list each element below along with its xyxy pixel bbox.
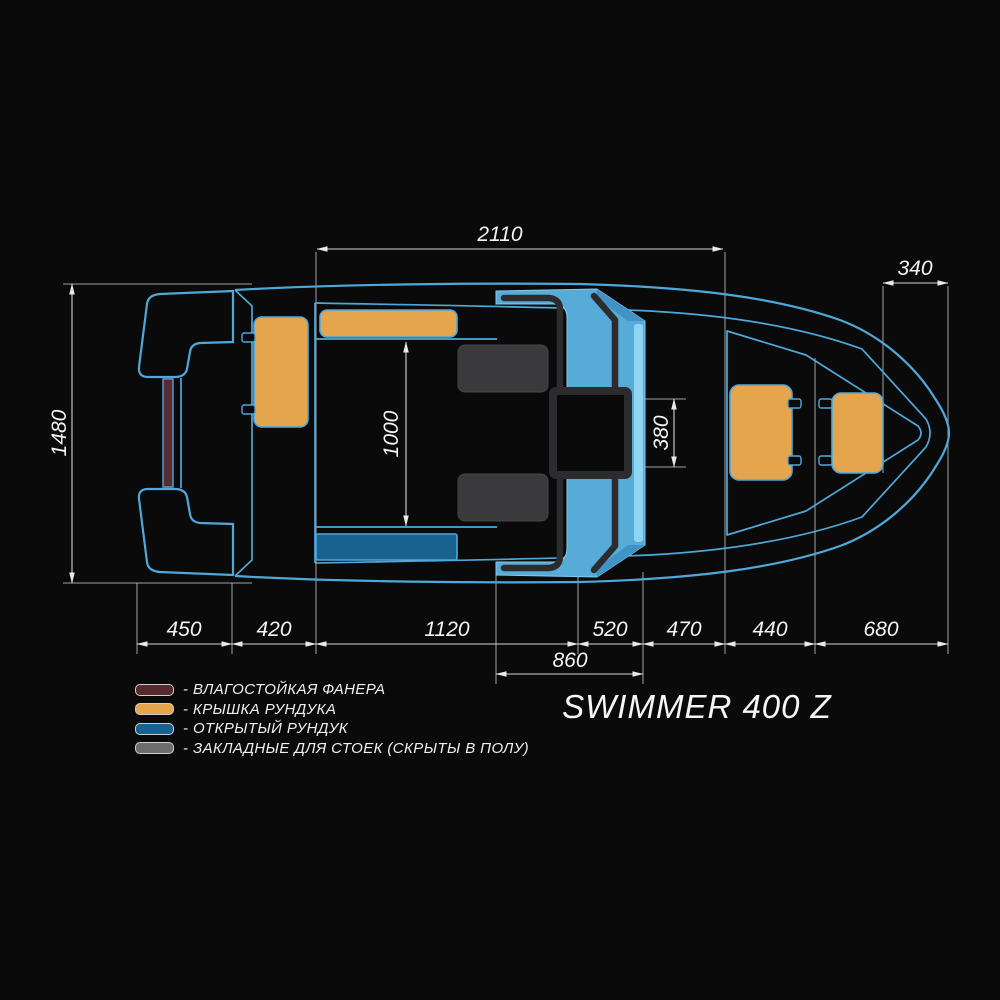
seat-plate-top (458, 345, 548, 392)
legend-item-plywood: - ВЛАГОСТОЙКАЯ ФАНЕРА (135, 680, 529, 700)
bow-hatch-large-hinge-top (788, 399, 801, 408)
legend-swatch-plywood (135, 684, 174, 696)
legend-label-plywood: - ВЛАГОСТОЙКАЯ ФАНЕРА (183, 681, 385, 698)
bow-hatch-large-hinge-bottom (788, 456, 801, 465)
legend-swatch-locker-lid (135, 703, 174, 715)
dim-520: 520 (592, 618, 627, 641)
dim-420: 420 (256, 618, 291, 641)
dim-1000: 1000 (380, 410, 403, 457)
dim-860: 860 (552, 649, 587, 672)
walkthrough-opening (553, 391, 628, 475)
bow-hatch-small-hinge-bottom (819, 456, 832, 465)
aft-bench-locker-lid (254, 317, 308, 427)
dim-680: 680 (863, 618, 898, 641)
swim-platform-top (139, 291, 233, 377)
dim-450: 450 (166, 618, 201, 641)
bow-hatch-small (832, 393, 883, 473)
legend: - ВЛАГОСТОЙКАЯ ФАНЕРА - КРЫШКА РУНДУКА -… (135, 680, 529, 758)
open-locker (316, 534, 457, 560)
windshield-highlight (634, 324, 643, 542)
legend-label-open-locker: - ОТКРЫТЫЙ РУНДУК (183, 720, 348, 737)
side-locker-lid (320, 310, 457, 337)
drawing-title: SWIMMER 400 Z (527, 688, 867, 726)
windshield (496, 289, 645, 577)
boat-technical-drawing: 2110 340 1480 1000 380 450 420 1120 520 … (0, 0, 1000, 1000)
dim-470: 470 (666, 618, 701, 641)
legend-item-seat-plates: - ЗАКЛАДНЫЕ ДЛЯ СТОЕК (СКРЫТЫ В ПОЛУ) (135, 739, 529, 759)
seat-plate-bottom (458, 474, 548, 521)
legend-swatch-open-locker (135, 723, 174, 735)
legend-label-locker-lid: - КРЫШКА РУНДУКА (183, 701, 336, 718)
dim-380: 380 (650, 415, 673, 450)
boat-top-view (139, 284, 949, 583)
dim-1480: 1480 (48, 409, 71, 456)
aft-lid-hinge-bottom (242, 405, 255, 414)
swim-platform-bottom (139, 489, 233, 575)
drawing-canvas: 2110 340 1480 1000 380 450 420 1120 520 … (0, 0, 1000, 1000)
dim-1120: 1120 (424, 618, 469, 641)
legend-label-seat-plates: - ЗАКЛАДНЫЕ ДЛЯ СТОЕК (СКРЫТЫ В ПОЛУ) (183, 740, 529, 757)
legend-item-locker-lid: - КРЫШКА РУНДУКА (135, 700, 529, 720)
transom-plywood (163, 379, 173, 487)
dim-440: 440 (752, 618, 787, 641)
dim-340: 340 (897, 257, 932, 280)
aft-lid-hinge-top (242, 333, 255, 342)
dim-2110: 2110 (476, 223, 522, 246)
bow-hatch-large (730, 385, 792, 480)
bow-hatch-small-hinge-top (819, 399, 832, 408)
legend-swatch-seat-plates (135, 742, 174, 754)
legend-item-open-locker: - ОТКРЫТЫЙ РУНДУК (135, 719, 529, 739)
